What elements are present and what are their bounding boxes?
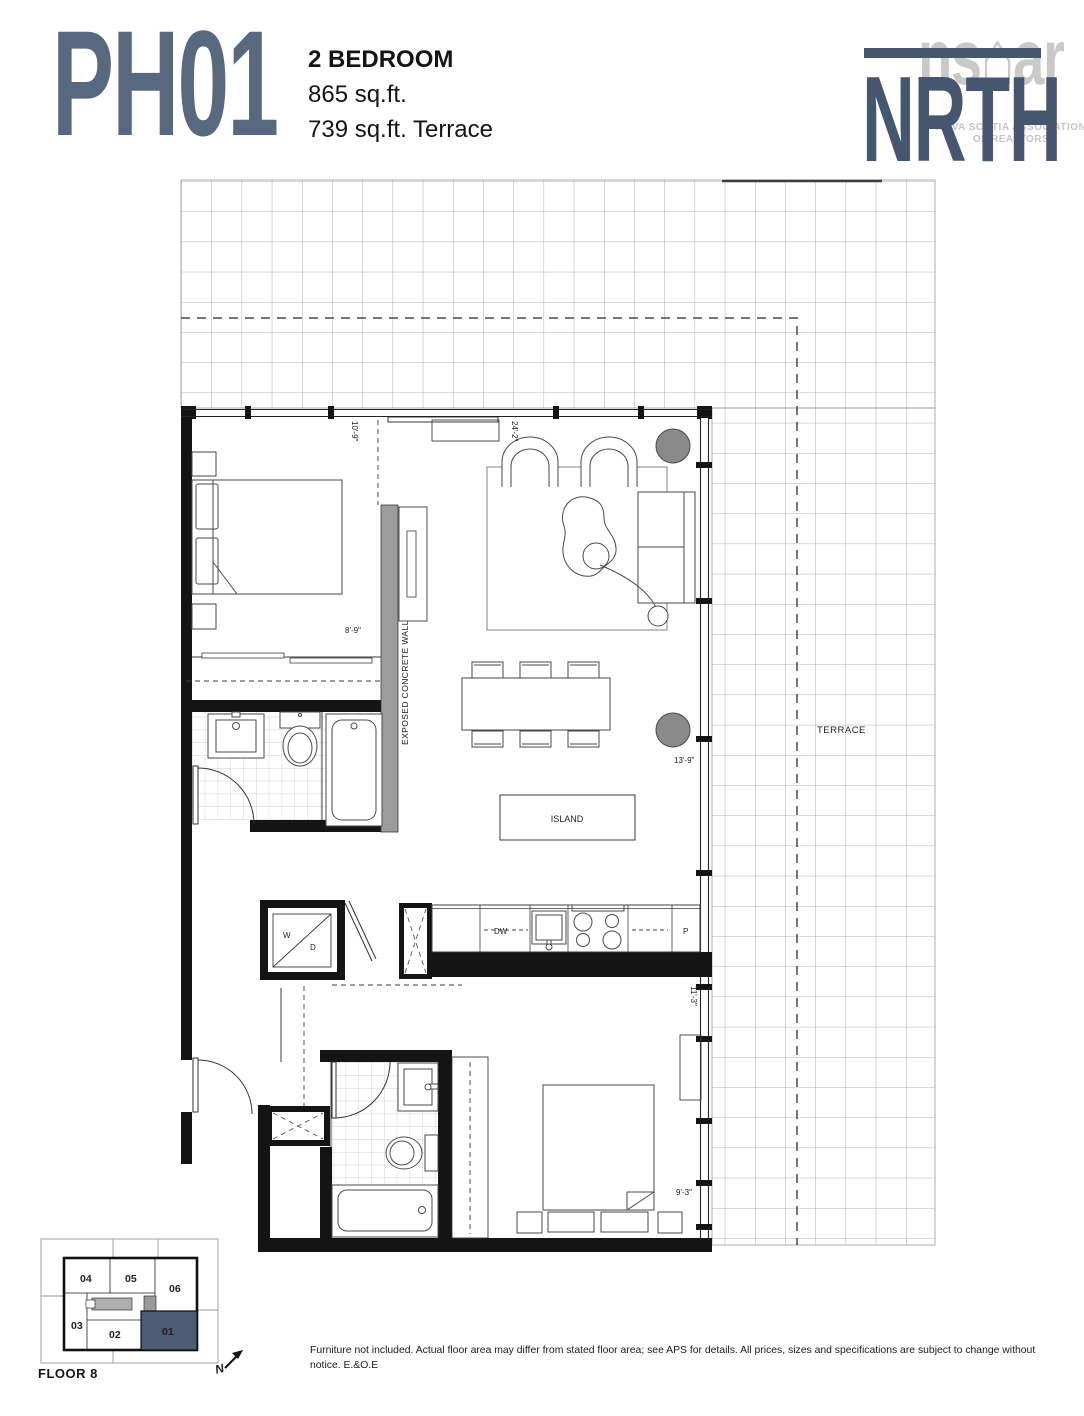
exposed-concrete-wall-label: EXPOSED CONCRETE WALL xyxy=(400,620,410,745)
keyplan-stair xyxy=(144,1296,156,1311)
armchair xyxy=(502,437,558,487)
structural-column xyxy=(656,713,690,747)
dim-living-width: 24'-2" xyxy=(510,421,519,442)
nrth-logo-text: NRTH xyxy=(862,58,1061,180)
kitchen-sink xyxy=(532,911,566,950)
armchair xyxy=(581,437,637,487)
sliding-door xyxy=(388,417,498,422)
dishwasher-label: DW xyxy=(494,927,508,936)
keyplan-unit-05: 05 xyxy=(125,1273,137,1285)
sofa xyxy=(638,492,695,603)
floorplan-sheet: 10'-9" 24'-2" 8'-9" 13'-9" 11'-3" 9'-3" … xyxy=(0,0,1084,1416)
keyplan-elevator xyxy=(86,1300,95,1308)
keyplan-unit-02: 02 xyxy=(109,1329,121,1341)
floor-plan: 10'-9" 24'-2" 8'-9" 13'-9" 11'-3" 9'-3" … xyxy=(0,0,1084,1416)
foyer-shaft xyxy=(266,1106,330,1146)
structural-column xyxy=(656,429,690,463)
disclaimer-text: Furniture not included. Actual floor are… xyxy=(310,1344,1062,1373)
wardrobe xyxy=(680,1035,701,1100)
keyplan-unit-06: 06 xyxy=(169,1283,181,1295)
dryer-label: D xyxy=(310,943,316,952)
keyplan-unit-03: 03 xyxy=(71,1320,83,1332)
dining-set xyxy=(462,662,610,747)
north-label: N xyxy=(214,1361,226,1377)
keyplan-unit-01: 01 xyxy=(162,1326,174,1338)
bed-secondary xyxy=(517,1085,682,1233)
dim-bedroom1-depth: 8'-9" xyxy=(345,626,361,635)
dim-living-depth: 13'-9" xyxy=(674,756,695,765)
unit-type: 2 BEDROOM xyxy=(308,42,493,77)
key-plan: 04 05 06 03 02 01 N xyxy=(35,1232,275,1382)
terrace-area: 739 sq.ft. Terrace xyxy=(308,112,493,147)
washer-label: W xyxy=(283,931,291,940)
keyplan-unit-04: 04 xyxy=(80,1273,92,1285)
toilet xyxy=(425,1135,438,1171)
dim-bedroom2-width: 11'-3" xyxy=(689,986,698,1006)
exposed-concrete-wall xyxy=(381,505,398,832)
island-label: ISLAND xyxy=(551,814,584,824)
kitchen-shaft xyxy=(399,903,432,979)
washer-dryer xyxy=(260,900,376,980)
terrace-label: TERRACE xyxy=(817,725,866,736)
dim-bedroom2-depth: 9'-3" xyxy=(676,1188,692,1197)
keyplan-corridor xyxy=(92,1298,132,1310)
bed-primary xyxy=(192,452,342,629)
unit-summary: 2 BEDROOM 865 sq.ft. 739 sq.ft. Terrace xyxy=(308,42,493,147)
dim-bedroom1-width: 10'-9" xyxy=(350,421,359,442)
interior-area: 865 sq.ft. xyxy=(308,77,493,112)
tv-console xyxy=(399,507,427,621)
pantry-label: P xyxy=(683,927,688,936)
unit-number: PH01 xyxy=(52,8,277,158)
kitchen-counter xyxy=(432,905,700,952)
